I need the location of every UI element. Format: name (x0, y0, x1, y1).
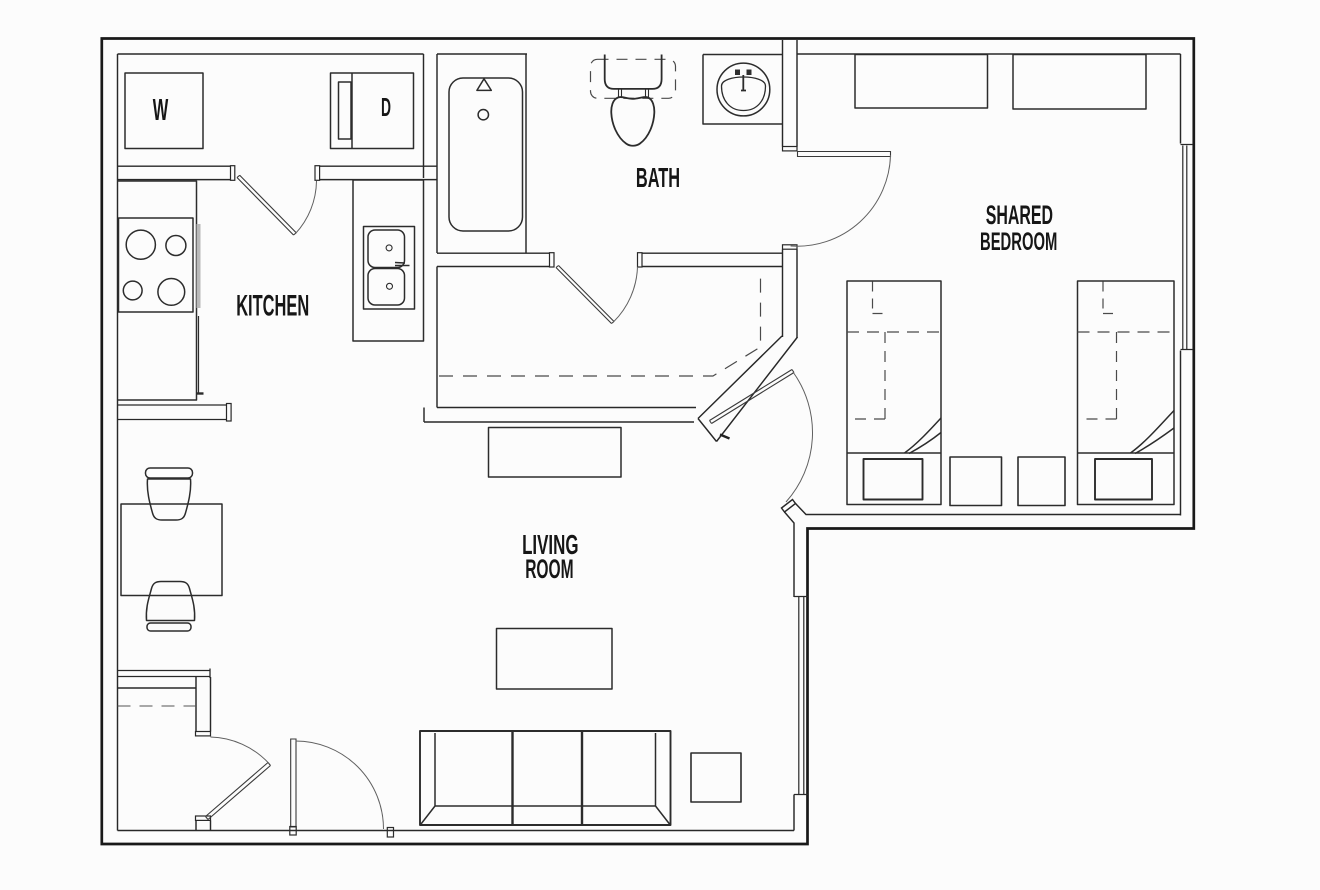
svg-text:SHARED: SHARED (986, 200, 1053, 230)
svg-text:BEDROOM: BEDROOM (980, 228, 1057, 256)
svg-text:KITCHEN: KITCHEN (236, 289, 309, 322)
svg-text:W: W (153, 92, 169, 127)
svg-text:BATH: BATH (636, 162, 680, 193)
svg-text:D: D (381, 94, 391, 122)
svg-text:ROOM: ROOM (525, 554, 573, 584)
